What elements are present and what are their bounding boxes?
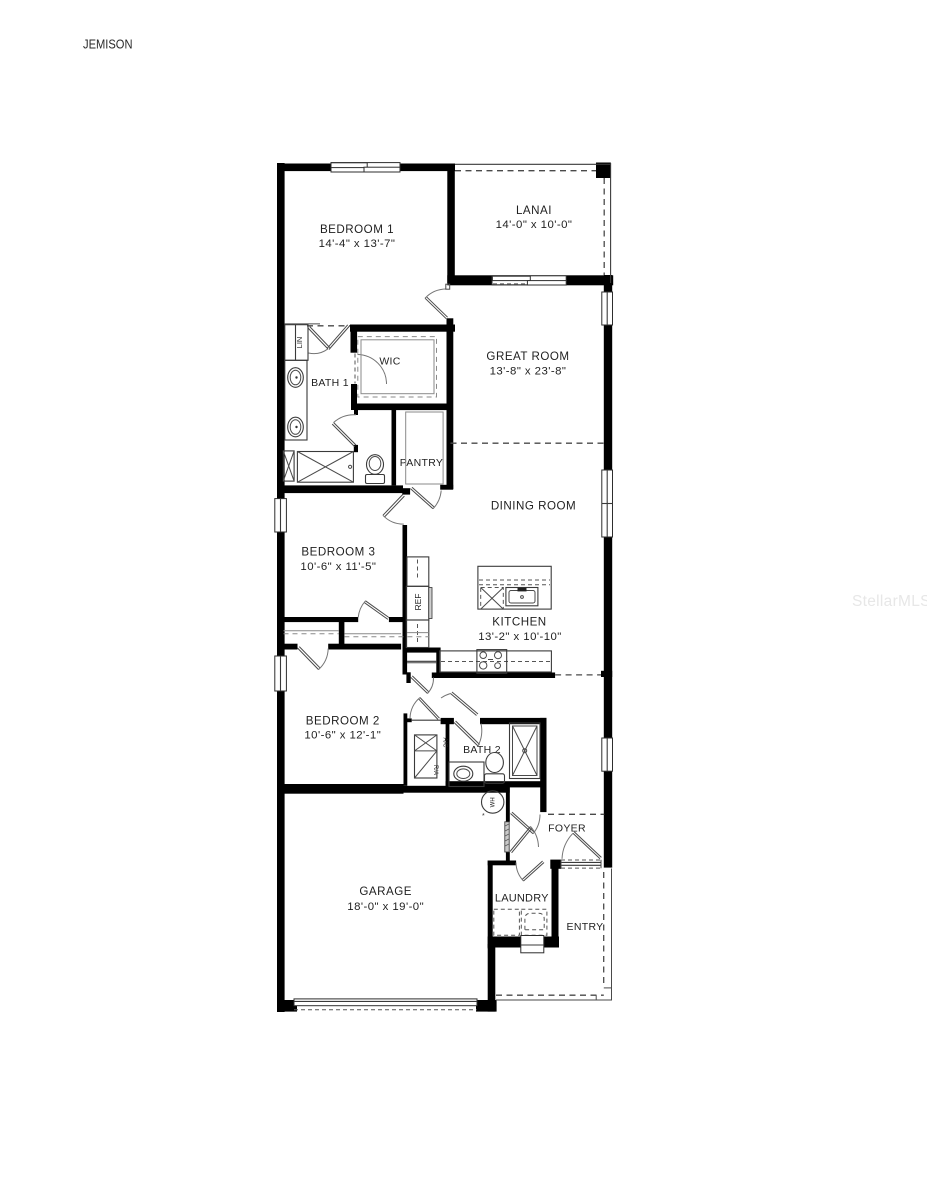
svg-text:14'-0" x 10'-0": 14'-0" x 10'-0" (496, 219, 573, 231)
svg-text:KITCHEN: KITCHEN (492, 616, 546, 629)
svg-text:LANAI: LANAI (516, 204, 552, 217)
svg-text:13'-2" x 10'-10": 13'-2" x 10'-10" (478, 631, 562, 643)
svg-text:BEDROOM 1: BEDROOM 1 (320, 223, 394, 236)
svg-text:WIC: WIC (379, 356, 400, 368)
svg-text:BATH 1: BATH 1 (311, 377, 349, 389)
svg-text:PANTRY: PANTRY (400, 457, 443, 469)
svg-text:JEMISON: JEMISON (83, 38, 133, 52)
svg-text:10'-6" x 12'-1": 10'-6" x 12'-1" (304, 730, 381, 742)
svg-text:ENTRY: ENTRY (567, 921, 604, 933)
svg-text:LAUNDRY: LAUNDRY (495, 893, 549, 905)
svg-text:BEDROOM 3: BEDROOM 3 (301, 546, 375, 559)
svg-text:FOYER: FOYER (548, 823, 586, 835)
svg-text:13'-8" x 23'-8": 13'-8" x 23'-8" (490, 366, 567, 378)
svg-text:BATH 2: BATH 2 (463, 744, 501, 756)
svg-text:GREAT ROOM: GREAT ROOM (486, 350, 569, 363)
svg-text:14'-4" x 13'-7": 14'-4" x 13'-7" (319, 238, 396, 250)
svg-text:DINING ROOM: DINING ROOM (491, 500, 576, 513)
svg-text:BEDROOM 2: BEDROOM 2 (306, 715, 380, 728)
svg-text:GARAGE: GARAGE (359, 885, 412, 898)
svg-text:StellarMLS: StellarMLS (852, 593, 927, 610)
svg-text:10'-6" x 11'-5": 10'-6" x 11'-5" (300, 561, 376, 573)
svg-text:A/C: A/C (442, 737, 448, 748)
svg-text:REF: REF (413, 594, 423, 611)
svg-text:18'-0" x 19'-0": 18'-0" x 19'-0" (347, 901, 424, 913)
svg-text:LIN: LIN (295, 337, 304, 349)
svg-text:*: * (482, 813, 485, 820)
svg-text:WH: WH (491, 797, 497, 807)
